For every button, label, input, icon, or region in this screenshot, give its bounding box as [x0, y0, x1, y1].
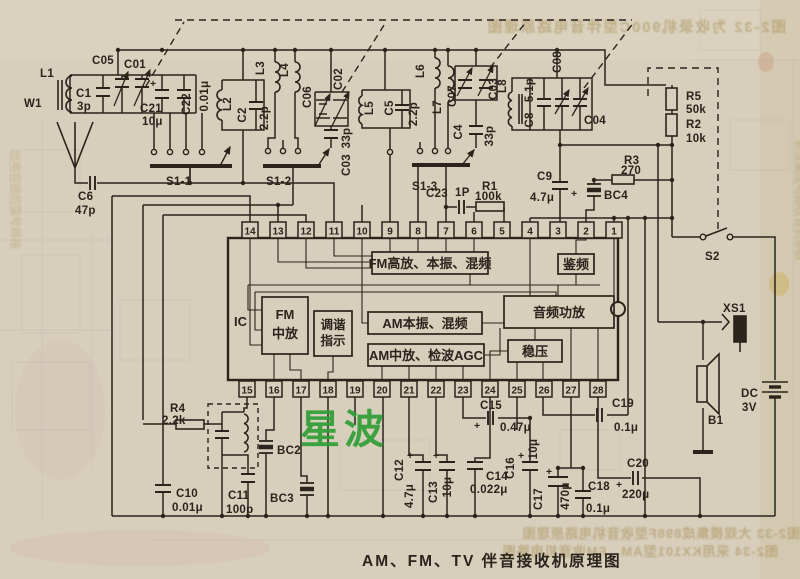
label-c22-value: 0.01μ [199, 81, 211, 112]
ic-pin-4: 4 [527, 227, 533, 238]
label-r5-value: 50k [686, 104, 706, 116]
label-c13-plus: + [433, 450, 439, 462]
ic-pin-28: 28 [592, 386, 604, 397]
label-fm-if-1: FM [276, 307, 295, 322]
label-l5: L5 [364, 101, 376, 115]
label-l3: L3 [255, 61, 267, 75]
label-c04: C04 [584, 115, 606, 127]
ic-pin-21: 21 [403, 386, 415, 397]
label-c20-value: 220μ [622, 489, 649, 501]
label-c17-plus: + [546, 466, 552, 478]
label-l1: L1 [40, 68, 54, 80]
label-s1-2: S1-2 [266, 176, 292, 188]
label-tuning-1: 调谐 [320, 317, 346, 332]
ic-pin-25: 25 [511, 386, 523, 397]
label-c13: C13 [428, 481, 440, 503]
ic-pin-9: 9 [387, 227, 393, 238]
label-c4: C4 [453, 124, 465, 140]
label-c10: C10 [176, 488, 198, 500]
label-c21: C21 [140, 103, 162, 115]
ic-pin-6: 6 [471, 227, 477, 238]
label-c20: C20 [627, 458, 649, 470]
label-c16: C16 [505, 457, 517, 479]
label-c19-value: 0.1μ [614, 422, 638, 434]
label-c4-value: 33p [484, 126, 496, 147]
label-c19: C19 [612, 398, 634, 410]
figure-caption: AM、FM、TV 伴音接收机原理图 [362, 551, 622, 570]
ic-pin-24: 24 [484, 386, 496, 397]
ic-pin-2: 2 [583, 227, 589, 238]
ic-pin-13: 13 [272, 227, 284, 238]
label-c16-value: 10μ [528, 439, 540, 460]
label-c08: C08 [552, 51, 564, 73]
label-c9-plus: + [571, 188, 577, 200]
ic-pin-20: 20 [376, 386, 388, 397]
label-c23: C23 [426, 188, 448, 200]
label-c8-value: 5.1p [524, 78, 536, 102]
label-bc4: BC4 [604, 190, 628, 202]
label-am-if: AM中放、检波AGC [369, 348, 484, 363]
label-r4-value: 2.2k [162, 415, 186, 427]
bleed-right-margin: 新型集成电路收音机参数 [793, 140, 800, 262]
label-c16-plus: + [518, 450, 524, 462]
label-dc: DC [741, 388, 758, 400]
label-c12-value: 4.7μ [404, 484, 416, 508]
label-r5: R5 [686, 91, 702, 103]
bleed-bottom-line-1: 图2-33 大规模集成898F型收音机电路原理图 [522, 526, 800, 541]
label-l8: L8 [497, 79, 509, 93]
label-c1-value: 3p [77, 101, 91, 113]
ic-pin-10: 10 [356, 227, 368, 238]
label-c18: C18 [588, 481, 610, 493]
label-c22: C22 [181, 93, 193, 115]
label-r4: R4 [170, 403, 186, 415]
label-dc-voltage: 3V [742, 402, 757, 414]
label-r2-value: 10k [686, 133, 706, 145]
label-c9-value: 4.7μ [530, 192, 554, 204]
label-c6-value: 47p [75, 205, 96, 217]
label-s2: S2 [705, 251, 720, 263]
label-bc3: BC3 [270, 493, 294, 505]
ic-notch [611, 302, 625, 316]
label-c11: C11 [228, 490, 250, 502]
ic-pin-8: 8 [415, 227, 421, 238]
label-c15-plus: + [474, 420, 480, 432]
schematic-canvas: 图2-32 为收录机900C型伴音电路原理图 图2-33 大规模集成898F型收… [0, 0, 800, 579]
ic-pin-15: 15 [241, 386, 253, 397]
label-c12-plus: + [407, 450, 413, 462]
label-xs1: XS1 [723, 303, 746, 315]
ic-pin-12: 12 [300, 227, 312, 238]
ic-pin-5: 5 [499, 227, 505, 238]
ic-pin-7: 7 [443, 227, 449, 238]
label-fm-if-2: 中放 [272, 326, 299, 341]
ic-pin-1: 1 [611, 227, 617, 238]
ic-pin-11: 11 [329, 227, 340, 238]
label-l6: L6 [415, 64, 427, 78]
bleed-left-margin: 出电容器的型号规格 [9, 150, 23, 250]
label-c9: C9 [537, 171, 552, 183]
label-l4: L4 [279, 63, 291, 77]
ic-pin-14: 14 [244, 227, 256, 238]
label-s1-1: S1-1 [166, 176, 192, 188]
label-discriminator: 鉴频 [562, 257, 589, 272]
label-l2: L2 [222, 97, 234, 111]
label-c18-value: 0.1μ [586, 503, 610, 515]
ic-pin-3: 3 [555, 227, 561, 238]
label-c15-value: 0.47μ [500, 422, 531, 434]
label-c23-value: 1P [455, 187, 470, 199]
label-c2-value: 2.2p [259, 106, 271, 130]
label-r2: R2 [686, 119, 701, 131]
label-c01: C01 [124, 59, 146, 71]
label-c06: C06 [302, 86, 314, 108]
label-c6: C6 [78, 191, 93, 203]
ic-pin-26: 26 [538, 386, 550, 397]
label-c1: C1 [76, 88, 92, 100]
ic-pin-16: 16 [268, 386, 280, 397]
ic-pin-18: 18 [322, 386, 334, 397]
label-c03a: C03 [341, 154, 353, 176]
label-c17-value: 470μ [560, 482, 572, 509]
label-c15: C15 [480, 400, 502, 412]
label-fm-rf: FM高放、本振、混频 [369, 256, 492, 271]
label-c11-value: 100p [226, 504, 253, 516]
label-c17: C17 [533, 488, 545, 510]
ic-pin-23: 23 [457, 386, 469, 397]
label-ic: IC [234, 314, 248, 329]
label-c8: C8 [524, 112, 536, 128]
label-c02: C02 [333, 68, 345, 90]
label-c21-value: 10μ [142, 116, 163, 128]
label-c14-value: 0.022μ [470, 484, 508, 496]
label-audio-amp: 音频功放 [533, 305, 586, 320]
green-watermark: 星波 [300, 408, 388, 452]
label-r1-value: 100k [475, 191, 502, 203]
label-regulator: 稳压 [522, 344, 548, 359]
label-am-osc: AM本振、混频 [382, 316, 467, 331]
label-c05: C05 [92, 55, 114, 67]
scanned-schematic-page: 图2-32 为收录机900C型伴音电路原理图 图2-33 大规模集成898F型收… [0, 0, 800, 579]
label-r3-value: 270 [621, 165, 641, 177]
label-c5-value: 2.2p [408, 102, 420, 126]
label-c12: C12 [394, 459, 406, 481]
label-tuning-2: 指示 [320, 333, 346, 348]
label-bc2: BC2 [277, 445, 301, 457]
label-c10-value: 0.01μ [172, 502, 203, 514]
ic-pin-17: 17 [295, 386, 307, 397]
bleed-top-line: 图2-32 为收录机900C型伴音电路原理图 [486, 18, 786, 36]
ic-pin-19: 19 [349, 386, 361, 397]
label-l7: L7 [432, 100, 444, 114]
label-w1: W1 [24, 98, 42, 110]
label-c21-plus: + [150, 78, 156, 90]
label-b1: B1 [708, 415, 724, 427]
ic-pin-27: 27 [565, 386, 577, 397]
ic-pin-22: 22 [430, 386, 442, 397]
label-c07: C07 [447, 85, 459, 107]
label-c13-value: 10μ [442, 477, 454, 498]
label-c5: C5 [384, 100, 396, 116]
label-c03a-value: 33p [341, 128, 353, 149]
label-c2: C2 [237, 107, 249, 122]
